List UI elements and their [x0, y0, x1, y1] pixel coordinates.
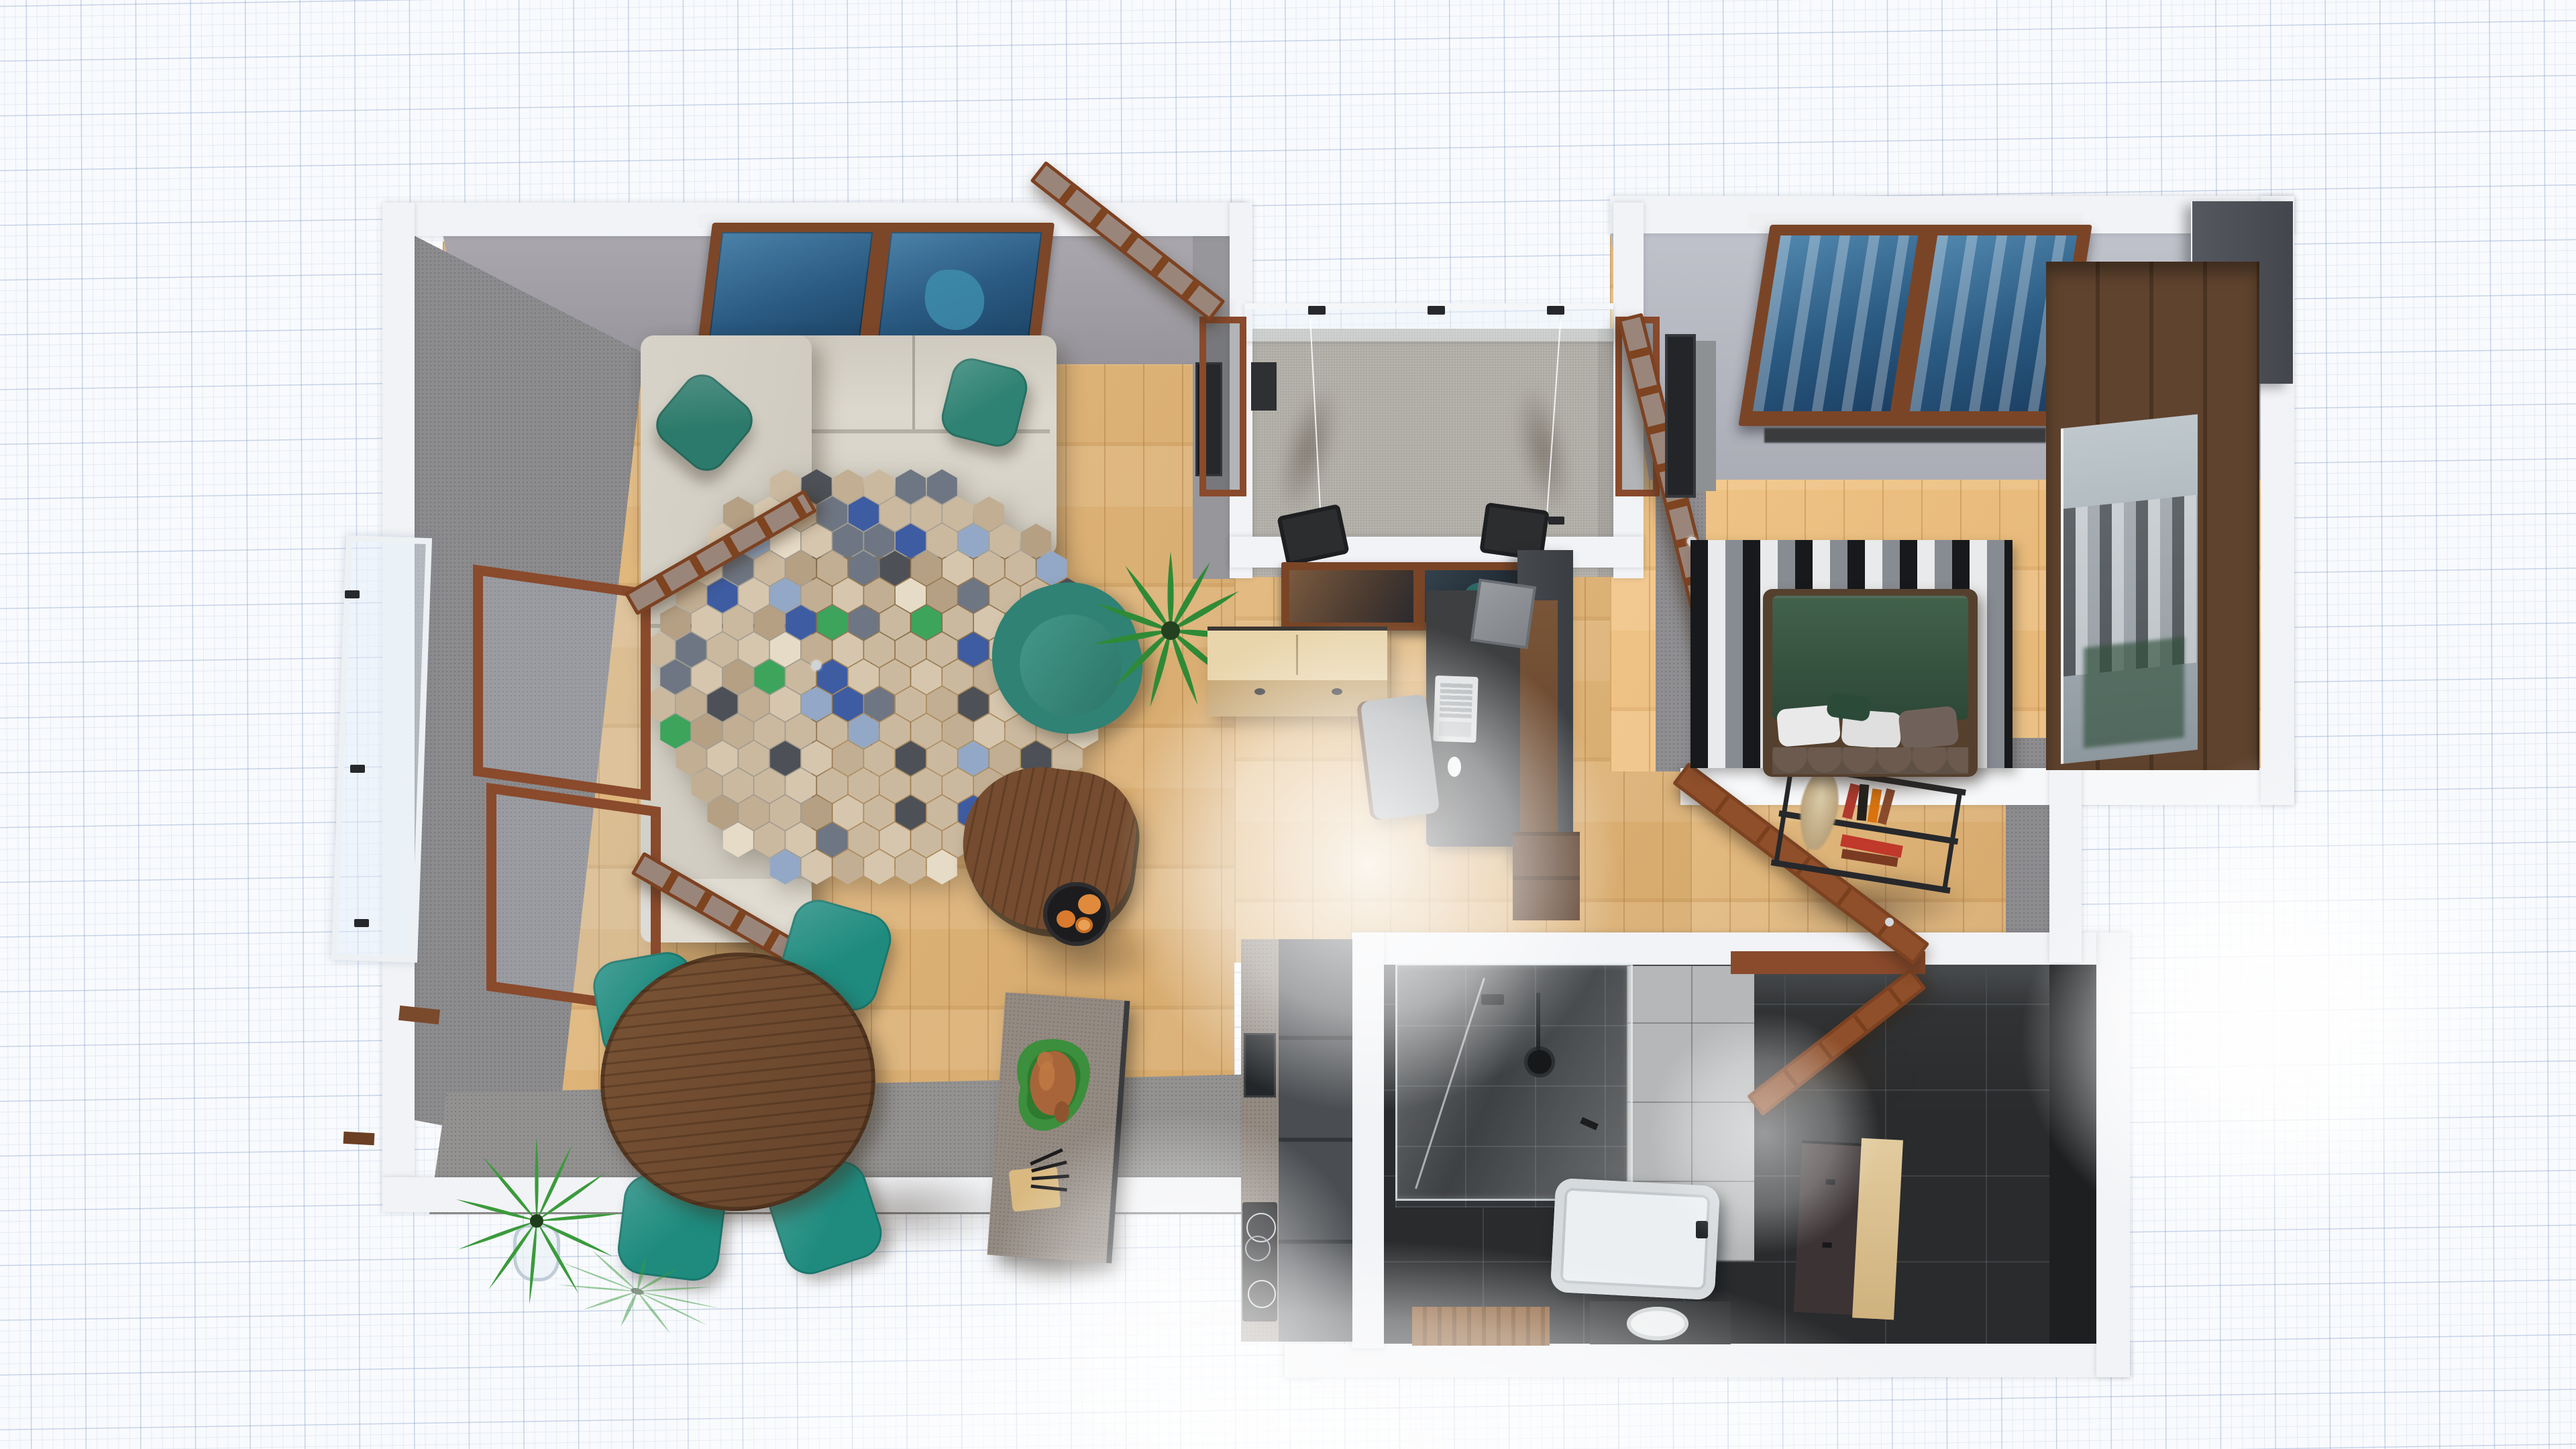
- shower-mixer[interactable]: [1481, 994, 1504, 1005]
- mouse[interactable]: [1448, 757, 1461, 777]
- radiator-ledge: [1764, 428, 2046, 443]
- french-door-frame: [473, 564, 651, 800]
- wood-slat-mat[interactable]: [1412, 1307, 1550, 1346]
- rug-hex-tile: [723, 659, 753, 694]
- rug-hex-tile: [707, 687, 737, 722]
- cooktop-ring: [1248, 1280, 1276, 1308]
- balcony-door-frame: [1199, 317, 1246, 496]
- rug-hex-tile: [880, 768, 910, 803]
- rug-hex-tile: [896, 687, 926, 722]
- rug-hex-tile: [974, 551, 1004, 586]
- rug-hex-tile: [911, 768, 941, 803]
- railing-floor-clamp: [1548, 517, 1564, 525]
- door-handle-icon: [1885, 918, 1894, 926]
- rug-hex-tile: [896, 578, 926, 613]
- rug-hex-tile: [959, 524, 989, 559]
- rug-hex-tile: [849, 496, 879, 531]
- rug-hex-tile: [927, 470, 957, 504]
- balcony-wall-unit[interactable]: [1251, 362, 1277, 411]
- wall-top-south-bathroom: [1285, 1344, 2130, 1377]
- rug-hex-tile: [723, 822, 753, 857]
- rug-hex-tile: [817, 822, 847, 857]
- laptop-keyboard: [1440, 682, 1473, 718]
- rug-hex-tile: [927, 524, 957, 559]
- console-seam: [1296, 635, 1298, 675]
- rug-hex-tile: [833, 796, 863, 830]
- rug-hex-tile: [927, 796, 957, 830]
- rug-hex-tile: [864, 687, 894, 722]
- railing-clamp: [345, 590, 360, 598]
- wood-piece-outside[interactable]: [343, 1132, 375, 1145]
- rug-hex-tile: [817, 659, 847, 694]
- bedroom-tv-icon[interactable]: [1665, 334, 1696, 498]
- rug-hex-tile: [723, 605, 753, 640]
- rug-hex-tile: [786, 822, 816, 857]
- rug-hex-tile: [974, 714, 1004, 749]
- console-handle-icon: [1332, 688, 1342, 695]
- rug-hex-tile: [1006, 551, 1036, 586]
- rug-hex-tile: [943, 768, 973, 803]
- rug-hex-tile: [880, 822, 910, 857]
- rug-hex-tile: [849, 605, 879, 640]
- bed-duvet-green: [1772, 596, 1968, 720]
- sofa-back-seam: [912, 335, 915, 429]
- rug-hex-tile: [770, 850, 800, 885]
- rug-hex-tile: [849, 822, 879, 857]
- orange-slice: [1075, 917, 1093, 933]
- rug-hex-tile: [927, 741, 957, 776]
- living-north-window[interactable]: [696, 223, 1055, 354]
- rug-hex-tile: [802, 687, 832, 722]
- induction-cooktop[interactable]: [1242, 1202, 1277, 1322]
- rug-hex-tile: [911, 551, 941, 586]
- kitchen-cabinet-front[interactable]: [1279, 939, 1352, 1342]
- rug-hex-tile: [911, 605, 941, 640]
- railing-clamp: [350, 765, 365, 773]
- rug-hex-tile: [849, 659, 879, 694]
- wall-top-east-bathroom: [2096, 932, 2130, 1377]
- rug-hex-tile: [802, 578, 832, 613]
- rug-hex-tile: [959, 633, 989, 667]
- rug-hex-tile: [864, 524, 894, 559]
- rug-hex-tile: [755, 605, 785, 640]
- rug-hex-tile: [896, 470, 926, 504]
- rug-hex-tile: [880, 551, 910, 586]
- rug-hex-tile: [707, 741, 737, 776]
- laptop[interactable]: [1433, 676, 1478, 743]
- rug-hex-tile: [927, 687, 957, 722]
- bed-scalloped-throw: [1772, 747, 1968, 774]
- vanity-cabinet[interactable]: [1793, 1140, 1861, 1315]
- orange-fruit: [1078, 894, 1101, 914]
- rug-hex-tile: [896, 796, 926, 830]
- rug-hex-tile: [755, 768, 785, 803]
- rug-hex-tile: [927, 850, 957, 885]
- rug-hex-tile: [755, 551, 785, 586]
- rug-hex-tile: [1036, 551, 1067, 586]
- rug-hex-tile: [817, 714, 847, 749]
- rug-hex-tile: [880, 605, 910, 640]
- rug-hex-tile: [911, 659, 941, 694]
- rug-hex-tile: [833, 741, 863, 776]
- rug-hex-tile: [1021, 524, 1051, 559]
- rug-hex-tile: [880, 496, 910, 531]
- rug-hex-tile: [676, 687, 706, 722]
- railing-clamp: [1547, 306, 1564, 315]
- rug-hex-tile: [786, 714, 816, 749]
- rug-hex-tile: [864, 741, 894, 776]
- rug-hex-tile: [880, 714, 910, 749]
- rug-hex-tile: [770, 741, 800, 776]
- rug-hex-tile: [833, 687, 863, 722]
- rug-hex-tile: [692, 659, 722, 694]
- rug-hex-tile: [770, 633, 800, 667]
- door-handle-icon: [812, 661, 821, 670]
- wall-top-kitchen-back: [1352, 932, 1384, 1348]
- rug-hex-tile: [911, 714, 941, 749]
- rug-hex-tile: [959, 741, 989, 776]
- fruit-plate[interactable]: [1043, 882, 1110, 946]
- rug-hex-tile: [786, 768, 816, 803]
- kitchen-island[interactable]: [987, 992, 1125, 1263]
- rug-hex-tile: [896, 633, 926, 667]
- orange-fruit: [1057, 910, 1075, 928]
- laptop-screen: [1439, 721, 1472, 737]
- rug-hex-tile: [739, 687, 769, 722]
- rug-hex-tile: [707, 578, 737, 613]
- 3d-viewport[interactable]: [0, 0, 2576, 1449]
- rug-hex-tile: [802, 741, 832, 776]
- rug-hex-tile: [943, 496, 973, 531]
- rug-hex-tile: [849, 551, 879, 586]
- rug-hex-tile: [723, 714, 753, 749]
- window-pane-glass: [1289, 570, 1413, 623]
- shower-glass-panel[interactable]: [1395, 963, 1633, 1201]
- rug-hex-tile: [707, 633, 737, 667]
- spiky-plant[interactable]: [449, 1134, 624, 1308]
- rug-hex-tile: [911, 496, 941, 531]
- rug-hex-tile: [864, 578, 894, 613]
- bathtub[interactable]: [1550, 1178, 1721, 1301]
- rug-hex-tile: [770, 687, 800, 722]
- rug-hex-tile: [786, 605, 816, 640]
- rug-hex-tile: [692, 605, 722, 640]
- rug-hex-tile: [802, 796, 832, 830]
- tv-panel-gray: [1696, 341, 1716, 491]
- railing-clamp: [354, 919, 369, 927]
- rug-hex-tile: [817, 768, 847, 803]
- double-bed[interactable]: [1763, 589, 1978, 777]
- desk-monitor[interactable]: [1470, 578, 1536, 649]
- rug-hex-tile: [660, 714, 690, 749]
- rug-hex-tile: [660, 659, 690, 694]
- rug-hex-tile: [864, 470, 894, 504]
- rug-hex-tile: [974, 496, 1004, 531]
- rug-hex-tile: [770, 578, 800, 613]
- rug-hex-tile: [739, 796, 769, 830]
- rug-hex-tile: [817, 496, 847, 531]
- rug-hex-tile: [943, 714, 973, 749]
- window-pane-glass: [709, 232, 873, 339]
- apartment-3d-model: [349, 161, 2334, 1436]
- rug-hex-tile: [864, 633, 894, 667]
- rug-hex-tile: [802, 850, 832, 885]
- tub-faucet-icon: [1696, 1221, 1708, 1238]
- rug-hex-tile: [723, 768, 753, 803]
- rug-hex-tile: [959, 578, 989, 613]
- rug-hex-tile: [833, 850, 863, 885]
- rug-hex-tile: [755, 714, 785, 749]
- rug-hex-tile: [676, 741, 706, 776]
- rug-hex-tile: [833, 633, 863, 667]
- railing-clamp: [1308, 306, 1326, 315]
- rug-hex-tile: [739, 633, 769, 667]
- rug-hex-tile: [849, 714, 879, 749]
- sliding-mirror[interactable]: [2063, 414, 2198, 763]
- drawer-handle-icon: [1822, 1242, 1831, 1248]
- rug-hex-tile: [959, 687, 989, 722]
- rug-hex-tile: [739, 741, 769, 776]
- desk-chair[interactable]: [1356, 694, 1440, 820]
- rug-hex-tile: [660, 605, 690, 640]
- rug-hex-tile: [739, 578, 769, 613]
- rug-hex-tile: [864, 850, 894, 885]
- rug-hex-tile: [676, 633, 706, 667]
- rug-hex-tile: [786, 551, 816, 586]
- rug-hex-tile: [833, 578, 863, 613]
- rug-hex-tile: [896, 741, 926, 776]
- bathroom-east-wall-face: [2049, 963, 2096, 1348]
- rug-hex-tile: [927, 633, 957, 667]
- rug-hex-tile: [755, 659, 785, 694]
- railing-clamp: [1428, 306, 1445, 315]
- rug-hex-tile: [817, 605, 847, 640]
- bedroom-north-window[interactable]: [1738, 225, 2092, 426]
- counter-sink[interactable]: [1244, 1033, 1276, 1097]
- juliet-balcony-glass: [331, 535, 432, 963]
- rug-hex-tile: [943, 605, 973, 640]
- rug-hex-tile: [849, 768, 879, 803]
- drawer-handle-icon: [1825, 1179, 1835, 1185]
- sink-basin[interactable]: [1627, 1307, 1688, 1340]
- rug-hex-tile: [692, 714, 722, 749]
- rug-hex-tile: [927, 578, 957, 613]
- bathroom-door-lintel: [1731, 951, 1925, 974]
- rug-hex-tile: [989, 524, 1020, 559]
- shower-head-icon[interactable]: [1524, 1046, 1555, 1077]
- shower-arm: [1536, 993, 1540, 1050]
- rug-hex-tile: [833, 524, 863, 559]
- wall-top-corridor-east: [2049, 738, 2082, 963]
- rug-hex-tile: [911, 822, 941, 857]
- rug-hex-tile: [896, 850, 926, 885]
- rug-hex-tile: [707, 796, 737, 830]
- low-cabinet[interactable]: [1513, 832, 1580, 920]
- rug-hex-tile: [896, 524, 926, 559]
- rug-hex-tile: [755, 822, 785, 857]
- rug-hex-tile: [817, 551, 847, 586]
- rug-hex-tile: [770, 796, 800, 830]
- rug-hex-tile: [880, 659, 910, 694]
- rug-hex-tile: [692, 768, 722, 803]
- window-pane-glass: [1753, 235, 1918, 411]
- rug-hex-tile: [864, 796, 894, 830]
- bed-pillow-brown: [1898, 706, 1960, 751]
- rug-hex-tile: [802, 524, 832, 559]
- rug-hex-tile: [943, 551, 973, 586]
- rug-hex-tile: [833, 470, 863, 504]
- mirror-bed-reflection: [2084, 637, 2184, 749]
- rug-hex-tile: [943, 659, 973, 694]
- cooktop-ring: [1245, 1236, 1271, 1261]
- console-handle-icon: [1254, 688, 1265, 695]
